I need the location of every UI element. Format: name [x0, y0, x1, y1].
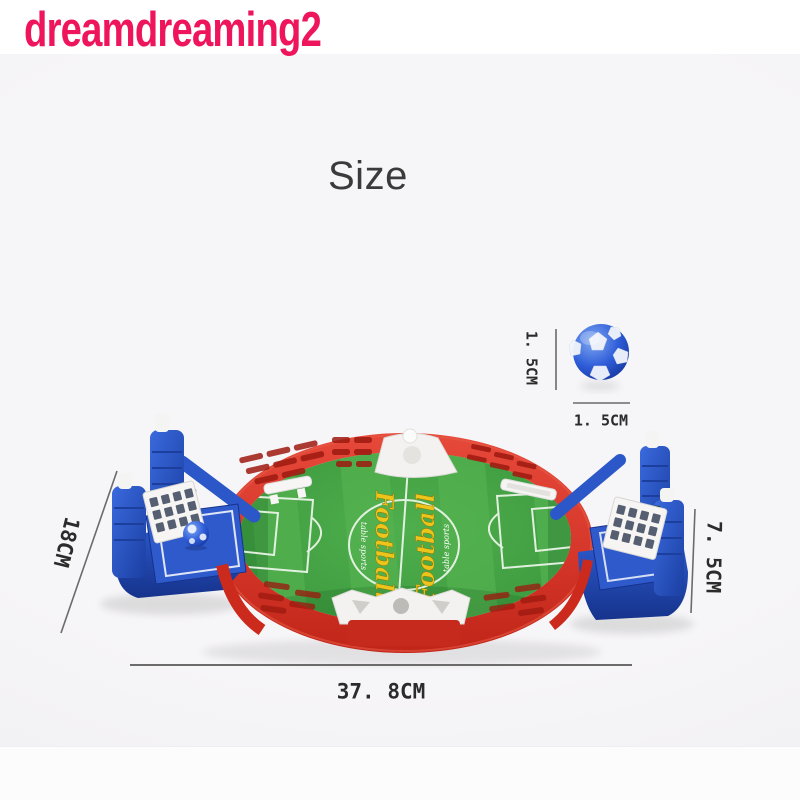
- seller-watermark: dreamdreaming2: [24, 2, 321, 58]
- board-length-label: 37. 8CM: [337, 682, 426, 703]
- logo-text: Football: [370, 490, 399, 600]
- board-height-label: 7. 5CM: [703, 521, 724, 594]
- ball-width-label: 1. 5CM: [574, 414, 628, 429]
- mini-ball: [183, 521, 209, 547]
- bottom-launcher: [332, 588, 470, 646]
- soccer-ball: [569, 324, 629, 381]
- logo-subtext: table sports: [359, 522, 368, 570]
- goal-assembly-left: [112, 414, 254, 598]
- size-title: Size: [328, 154, 408, 199]
- logo-subtext: table sports: [442, 524, 451, 572]
- ball-height-label: 1. 5CM: [524, 331, 539, 385]
- height-dimension-line: [691, 509, 695, 613]
- logo-text: Football: [411, 493, 440, 603]
- product-size-image: Football table sports Football table spo…: [0, 0, 800, 800]
